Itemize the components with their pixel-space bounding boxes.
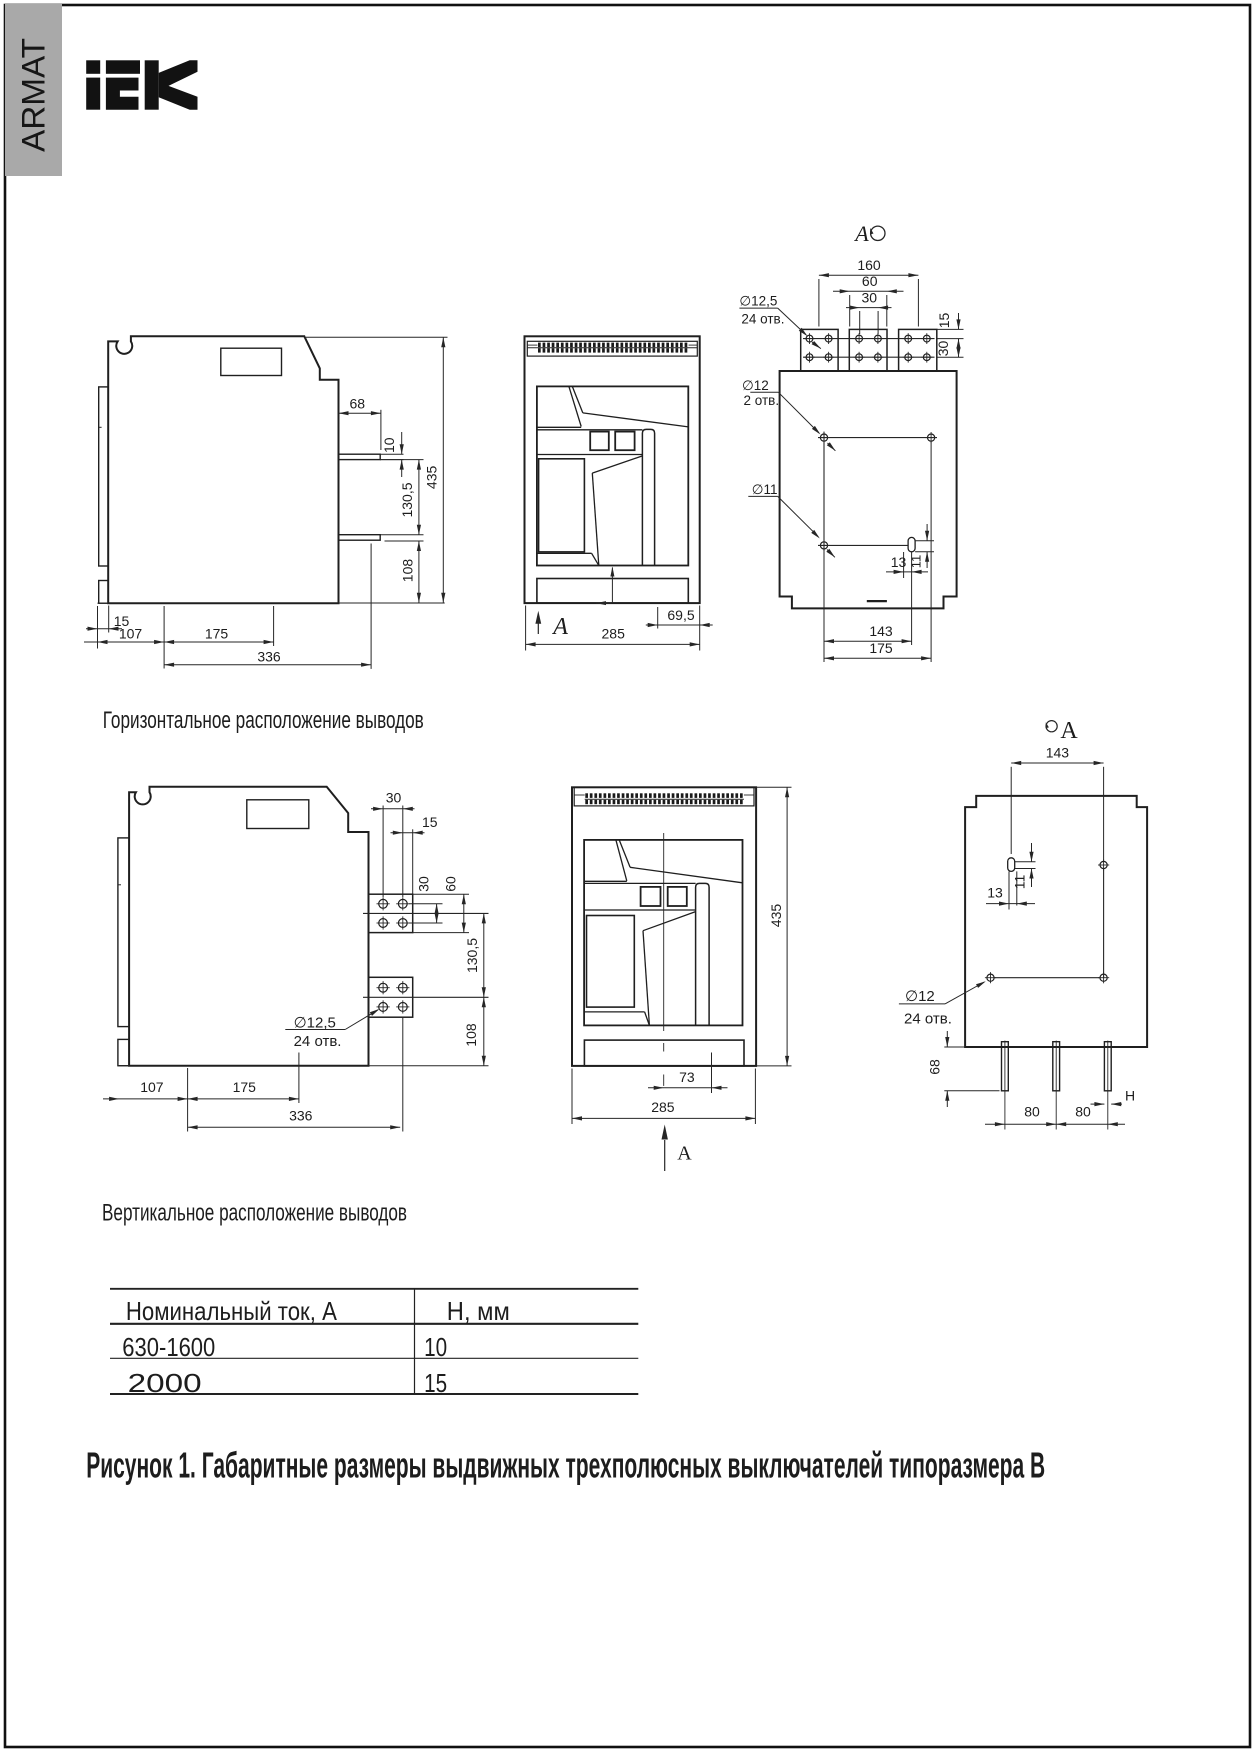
svg-text:30: 30 xyxy=(416,876,432,892)
svg-text:24 отв.: 24 отв. xyxy=(294,1033,342,1050)
svg-text:68: 68 xyxy=(927,1059,943,1075)
svg-text:∅12,5: ∅12,5 xyxy=(294,1015,336,1032)
svg-text:H: H xyxy=(1125,1088,1135,1104)
svg-text:175: 175 xyxy=(205,625,229,641)
svg-text:30: 30 xyxy=(935,341,951,357)
svg-text:10: 10 xyxy=(424,1332,447,1362)
svg-text:69,5: 69,5 xyxy=(667,607,694,623)
svg-text:143: 143 xyxy=(1046,744,1070,760)
svg-text:Вертикальное расположение выво: Вертикальное расположение выводов xyxy=(102,1200,407,1227)
svg-text:24 отв.: 24 отв. xyxy=(904,1011,952,1028)
svg-text:80: 80 xyxy=(1075,1104,1091,1120)
svg-text:73: 73 xyxy=(679,1069,695,1085)
svg-text:Н, мм: Н, мм xyxy=(447,1296,510,1326)
svg-text:336: 336 xyxy=(289,1107,313,1123)
svg-text:108: 108 xyxy=(400,559,416,583)
svg-text:∅12: ∅12 xyxy=(905,988,935,1005)
svg-text:13: 13 xyxy=(891,554,907,570)
svg-text:60: 60 xyxy=(862,273,878,289)
svg-text:11: 11 xyxy=(909,555,924,569)
svg-text:175: 175 xyxy=(869,640,893,656)
svg-text:130,5: 130,5 xyxy=(399,482,415,517)
svg-text:160: 160 xyxy=(857,257,881,273)
svg-text:30: 30 xyxy=(862,290,878,306)
svg-text:13: 13 xyxy=(987,885,1003,901)
svg-text:630-1600: 630-1600 xyxy=(122,1332,215,1362)
svg-text:435: 435 xyxy=(768,904,784,928)
svg-text:68: 68 xyxy=(350,396,366,412)
svg-text:A: A xyxy=(1060,718,1078,744)
svg-text:2000: 2000 xyxy=(128,1368,202,1398)
svg-text:A: A xyxy=(551,614,568,640)
svg-text:∅12: ∅12 xyxy=(742,378,769,393)
svg-text:A: A xyxy=(677,1143,692,1165)
svg-text:285: 285 xyxy=(651,1099,675,1115)
svg-text:130,5: 130,5 xyxy=(464,938,480,973)
svg-text:Номинальный ток, А: Номинальный ток, А xyxy=(126,1296,338,1326)
svg-text:24 отв.: 24 отв. xyxy=(741,312,784,327)
svg-text:175: 175 xyxy=(233,1079,257,1095)
svg-text:15: 15 xyxy=(424,1368,447,1398)
svg-text:A: A xyxy=(853,221,869,246)
svg-text:108: 108 xyxy=(463,1023,479,1047)
svg-text:∅11: ∅11 xyxy=(752,482,778,497)
svg-text:60: 60 xyxy=(443,876,459,892)
svg-text:30: 30 xyxy=(386,790,402,806)
svg-text:15: 15 xyxy=(422,814,438,830)
svg-text:80: 80 xyxy=(1024,1104,1040,1120)
svg-text:107: 107 xyxy=(140,1079,164,1095)
svg-text:Горизонтальное расположение вы: Горизонтальное расположение выводов xyxy=(103,707,424,734)
svg-text:10: 10 xyxy=(381,437,397,453)
svg-text:143: 143 xyxy=(869,623,893,639)
svg-text:107: 107 xyxy=(119,625,143,641)
svg-text:15: 15 xyxy=(936,313,952,329)
svg-text:285: 285 xyxy=(602,626,626,642)
svg-text:ARMAT: ARMAT xyxy=(16,38,52,152)
svg-text:2 отв.: 2 отв. xyxy=(744,393,780,408)
svg-text:11: 11 xyxy=(1011,875,1027,890)
svg-text:435: 435 xyxy=(424,466,440,490)
svg-text:Рисунок 1. Габаритные размеры: Рисунок 1. Габаритные размеры выдвижных … xyxy=(86,1444,1045,1485)
svg-text:336: 336 xyxy=(257,648,281,664)
svg-text:∅12,5: ∅12,5 xyxy=(739,294,777,309)
